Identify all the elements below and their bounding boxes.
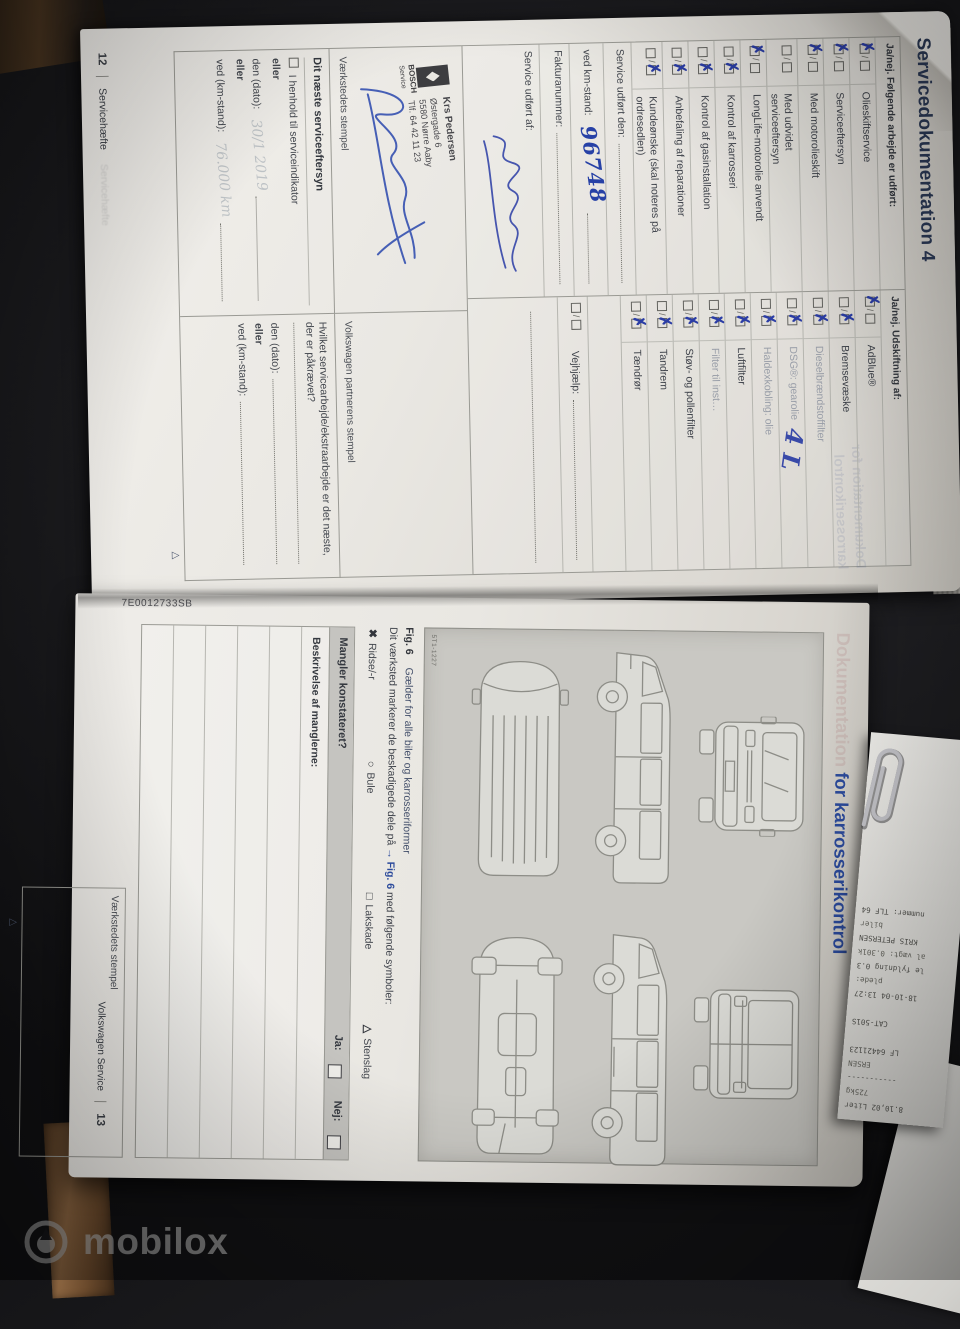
row-label: Med udvidet serviceeftersyn	[767, 83, 796, 212]
ja-nej-checkbox-pair: /	[682, 300, 694, 338]
checkbox-nej	[813, 314, 823, 324]
checklist-row: / Med udvidet serviceeftersyn	[766, 39, 803, 292]
service-indicator-checkbox	[289, 58, 299, 68]
ja-nej-checkbox-pair: /	[859, 44, 871, 82]
symbol-label: Ridse/-r	[364, 643, 378, 680]
page-number: 13	[93, 1113, 108, 1126]
checkbox-ja	[760, 299, 770, 309]
checkbox-ja	[656, 301, 666, 311]
checkbox-ja	[838, 297, 848, 307]
checkbox-nej	[683, 317, 693, 327]
van-underbody-view	[467, 927, 566, 1164]
workshop-stamp-label: Værkstedets stempel	[335, 57, 349, 151]
legend-item: ○ Bule	[361, 761, 376, 893]
pencil-km-note: 76.000 km	[212, 142, 235, 218]
footer-ghost: Servicehæfte	[97, 164, 111, 226]
empty-line	[167, 625, 205, 1157]
footer-label: Servicehæfte	[95, 88, 109, 150]
ja-nej-checkbox-pair: /	[671, 48, 683, 86]
row-label: Haldexkobling: olie	[760, 337, 775, 435]
ja-nej-checkbox-pair: /	[708, 300, 720, 338]
checkbox-ja	[864, 297, 874, 307]
no-checkbox	[327, 1135, 341, 1149]
checkbox-nej	[672, 64, 682, 74]
notes-area	[468, 297, 564, 574]
invoice-row: Fakturanummer:	[539, 44, 574, 297]
checklist-row: / Kundeønske (skal noteres på ordresedle…	[631, 42, 668, 295]
checkbox-ja	[833, 44, 843, 54]
mobilox-brand-text: mobilox	[83, 1221, 228, 1263]
checkbox-nej	[761, 315, 771, 325]
handwritten-signature-large	[350, 75, 440, 277]
legend-item: □ Lakskade	[359, 893, 374, 1025]
ja-nej-checkbox-pair: /	[760, 299, 772, 337]
checkbox-nej	[839, 314, 849, 324]
van-top-view	[468, 651, 571, 884]
checkbox-nej	[833, 61, 843, 71]
checklist-row: / Kontrol af gasinstallation	[688, 41, 719, 293]
triangle-mark: △	[169, 551, 182, 559]
row-label: Kontrol af karrosseri	[723, 84, 738, 188]
checkbox-ja	[781, 45, 791, 55]
checklist-row: / Kontrol af karrosseri	[714, 40, 745, 292]
replace-rows: / AdBlue® / Bremsevæske / Dieselbr	[621, 290, 887, 570]
empty-line	[199, 626, 237, 1158]
checkbox-ja	[698, 47, 708, 57]
workshop-stamp-box: BOSCHService Krs Pedersen Østergade 6 55…	[330, 46, 467, 312]
yes-checkbox	[328, 1065, 342, 1079]
row-label: Kontrol af gasinstallation	[697, 85, 713, 210]
checkbox-nej	[709, 316, 719, 326]
service-booklet-page-13: Dokumentation for karrosserikontrol	[68, 593, 869, 1187]
work-rows: / Olieskiftservice / Serviceeftersyn /	[631, 38, 881, 295]
row-label: Filter til inst…	[708, 338, 723, 412]
checkbox-ja	[859, 44, 869, 54]
checkbox-nej	[781, 62, 791, 72]
row-label: LongLife-motorolie anvendt	[749, 84, 765, 222]
ja-nej-checkbox-pair: /	[838, 297, 850, 335]
next-work-box: Hvilket servicearbejde/ekstraarbejde er …	[180, 312, 340, 580]
checkbox-ja	[570, 303, 580, 313]
empty-line	[231, 626, 269, 1158]
damage-symbol-legend: ✖ Ridse/-r ○ Bule □ Lakskade △	[358, 629, 378, 1157]
ja-nej-checkbox-pair: /	[781, 45, 793, 83]
body-damage-figure: 5T1-1227	[418, 627, 824, 1166]
figure-code: 5T1-1227	[429, 634, 438, 666]
row-label: Anbefaling af reparationer	[671, 86, 687, 217]
ja-nej-checkbox-pair: /	[630, 301, 642, 339]
row-label: Kundeønske (skal noteres på ordresedlen)	[632, 86, 663, 291]
legend-item: ✖ Ridse/-r	[362, 629, 377, 761]
ja-nej-checkbox-pair: /	[864, 297, 876, 335]
checkbox-ja	[708, 300, 718, 310]
checkbox-ja	[646, 48, 656, 58]
checkbox-nej	[646, 65, 656, 75]
checkbox-ja	[750, 46, 760, 56]
row-label: Med motorolieskift	[806, 83, 821, 178]
ja-nej-checkbox-pair: /	[570, 303, 582, 341]
row-label: Olieskiftservice	[858, 82, 873, 163]
row-label: Luftfilter	[734, 337, 748, 385]
symbol-glyph: □	[361, 893, 375, 900]
ja-nej-checkbox-pair: /	[807, 45, 819, 83]
km-row: ved km-stand: 96748	[569, 43, 608, 296]
ja-nej-checkbox-pair: /	[812, 298, 824, 336]
checkbox-nej	[698, 64, 708, 74]
van-front-view	[691, 716, 810, 837]
checkbox-nej	[735, 316, 745, 326]
ja-nej-checkbox-pair: /	[723, 46, 735, 84]
symbol-label: Bule	[363, 772, 376, 793]
page-number: 12	[94, 53, 109, 66]
ja-nej-checkbox-pair: /	[786, 298, 798, 336]
checkbox-nej	[571, 319, 581, 329]
defects-table: Mangler konstateret? Ja: Nej: Beskrivels…	[134, 624, 355, 1161]
checklist-row: / Anbefaling af reparationer	[662, 41, 693, 293]
page13-footer: Volkswagen Service │ 13	[93, 1001, 109, 1126]
checkbox-nej	[631, 318, 641, 328]
row-label: Tandrem	[656, 339, 670, 390]
checkbox-ja	[786, 298, 796, 308]
van-side-view-right	[576, 926, 679, 1175]
row-label: AdBlue®	[864, 335, 878, 387]
ja-nej-checkbox-pair: /	[749, 46, 761, 84]
legend-item: △ Stenslag	[358, 1025, 373, 1157]
checkbox-ja	[672, 48, 682, 58]
checkbox-nej	[807, 61, 817, 71]
checkbox-ja	[807, 45, 817, 55]
checkbox-nej	[859, 60, 869, 70]
triangle-mark: △	[3, 918, 18, 1156]
row-label: Dieselbrændstoffilter	[812, 336, 827, 442]
ja-nej-checkbox-pair: /	[656, 301, 668, 339]
checklist-row: / LongLife-motorolie anvendt	[740, 40, 771, 292]
empty-line	[263, 627, 301, 1159]
empty-line	[135, 625, 173, 1157]
checkbox-nej	[724, 63, 734, 73]
ja-nej-checkbox-pair: /	[734, 299, 746, 337]
symbol-label: Stenslag	[359, 1038, 373, 1079]
symbol-glyph: ✖	[364, 629, 378, 638]
checkbox-ja	[734, 299, 744, 309]
page12-footer: 12 │ Servicehæfte Servicehæfte	[94, 53, 112, 226]
checklist-row: / Med motorolieskift	[798, 39, 829, 291]
row-label: Tændrør	[630, 339, 644, 390]
checkbox-ja	[812, 298, 822, 308]
footer-brand: Volkswagen Service	[93, 1001, 107, 1091]
checklist-work-column: Ja/nej. Følgende arbejde er udført: / Ol…	[463, 37, 905, 299]
vw-partner-stamp-box: Volkswagen partnerens stempel	[335, 310, 473, 577]
ja-nej-checkbox-pair: /	[833, 44, 845, 82]
handwritten-signature	[480, 129, 535, 280]
page12-title: Servicedokumentation 4	[911, 37, 946, 565]
checkbox-nej	[865, 313, 875, 323]
mobilox-logo-icon	[22, 1218, 70, 1266]
service-by-row: Service udført af:	[477, 45, 544, 298]
next-service-section: Dit næste serviceeftersyn I henhold til …	[174, 48, 340, 581]
service-booklet-page-12: Servicedokumentation 4 Dokumentation for…	[80, 11, 960, 609]
ja-nej-checkbox-pair: /	[697, 47, 709, 85]
checkbox-nej	[787, 315, 797, 325]
workshop-stamp-box-13: Værkstedets stempel	[18, 887, 125, 1158]
row-label: Bremsevæske	[838, 335, 853, 412]
van-side-view-left	[580, 644, 683, 893]
checklist-replace-column: Ja/nej. Udskiftning af: / AdBlue® / Brem…	[468, 290, 911, 574]
symbol-label: Lakskade	[361, 904, 375, 949]
mobilox-watermark: mobilox	[22, 1218, 228, 1266]
checkbox-ja	[630, 301, 640, 311]
stamp-boxes: BOSCHService Krs Pedersen Østergade 6 55…	[329, 45, 473, 578]
service-checklist-table: Ja/nej. Følgende arbejde er udført: / Ol…	[462, 36, 912, 575]
symbol-glyph: △	[359, 1025, 373, 1034]
checkbox-ja	[682, 300, 692, 310]
roadside-assist-row: / Vejhjælp:	[558, 297, 594, 573]
row-label: DSG®: gearolie	[786, 336, 801, 420]
checkbox-nej	[750, 62, 760, 72]
row-label: Serviceeftersyn	[832, 82, 847, 165]
checklist-row: / Serviceeftersyn	[824, 38, 855, 290]
booklet-part-number: 7E0012733SB	[121, 598, 192, 611]
row-label: Støv- og pollenfilter	[682, 338, 697, 439]
next-service-box: Dit næste serviceeftersyn I henhold til …	[175, 49, 334, 316]
pencil-date-note: 30/1 2019	[248, 119, 270, 192]
handwritten-adblue-note: 4 L	[775, 427, 809, 472]
symbol-glyph: ○	[362, 761, 376, 768]
checkbox-nej	[657, 317, 667, 327]
van-rear-view	[685, 984, 804, 1105]
checklist-row: / Olieskiftservice	[850, 38, 881, 290]
vw-partner-stamp-label: Volkswagen partnerens stempel	[340, 321, 355, 463]
figure-caption: Fig. 6 Gælder for alle biler og karrosse…	[395, 627, 415, 1161]
ja-nej-checkbox-pair: /	[645, 48, 657, 86]
checkbox-ja	[724, 46, 734, 56]
